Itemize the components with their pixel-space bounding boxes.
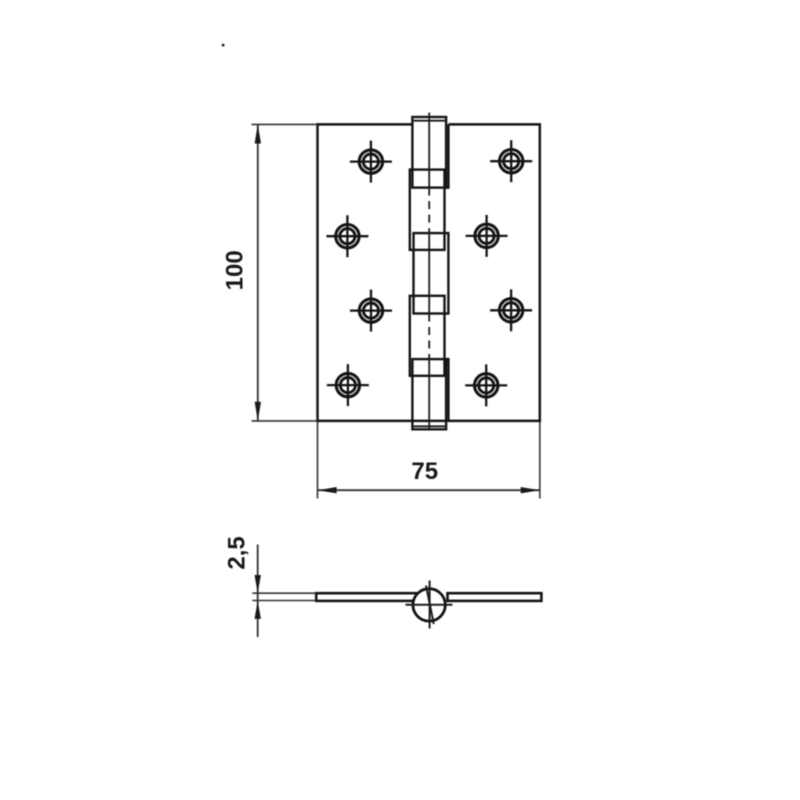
- svg-text:2,5: 2,5: [224, 536, 251, 569]
- svg-text:100: 100: [222, 250, 249, 290]
- svg-text:75: 75: [411, 458, 438, 485]
